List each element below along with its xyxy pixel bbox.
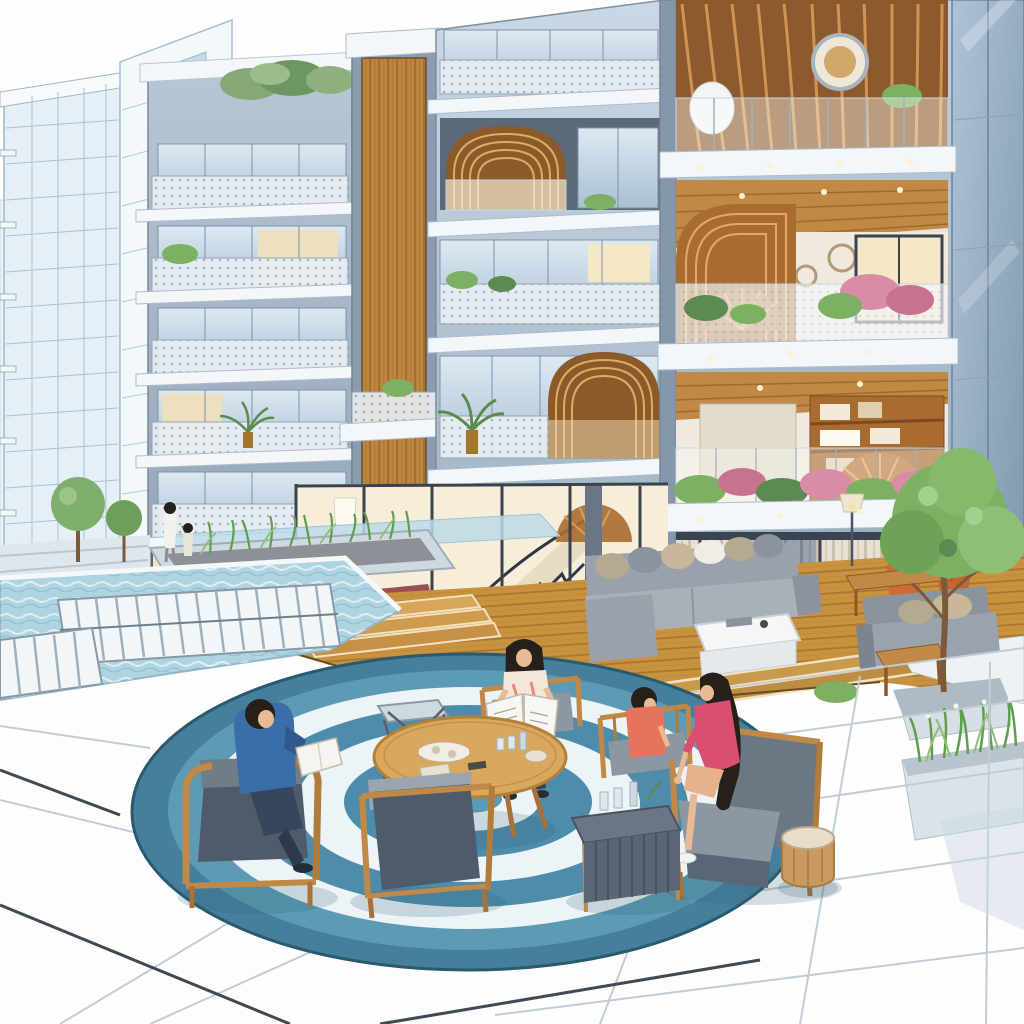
architectural-rendering: [0, 0, 1024, 1024]
right-floor-top: [660, 0, 956, 178]
mid-floor-1: [428, 30, 668, 114]
mid-floor-3: [428, 240, 668, 353]
right-floor-middle: [658, 180, 958, 370]
drum-stool: [778, 827, 838, 898]
